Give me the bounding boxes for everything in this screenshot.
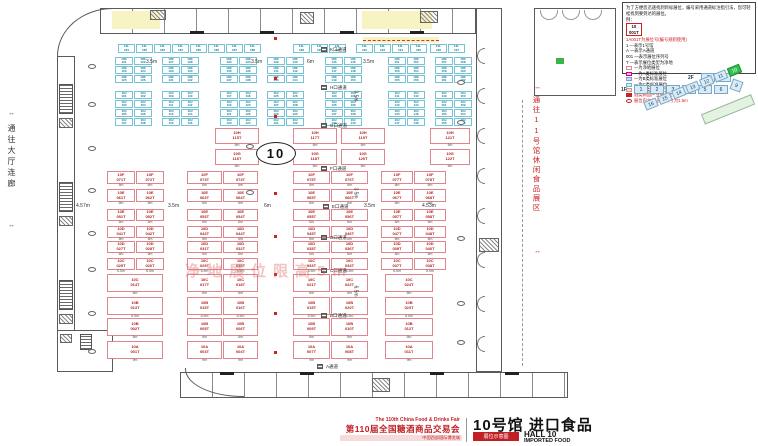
booth-cell-standard: 10K131	[162, 75, 180, 83]
booth-number: 147	[331, 70, 336, 73]
booth-cell-standard: 10J131	[267, 118, 285, 126]
booth-number: 193	[380, 49, 385, 52]
booth-number: 197	[454, 49, 459, 52]
booth-number: 140	[350, 122, 355, 125]
column-marker-icon	[88, 349, 96, 354]
booth-number: 009T	[307, 327, 316, 332]
booth-number: 122	[245, 113, 250, 116]
booth-number: 184	[178, 49, 183, 52]
legend-example-label: 例：	[626, 17, 752, 23]
booth-number: 045T	[307, 232, 316, 237]
booth-dimension: 9m	[293, 359, 330, 363]
booth-number: 111	[169, 104, 174, 107]
booth-dimension: 6m	[341, 165, 385, 169]
booth-cell-clear: 10A001T	[107, 341, 163, 359]
booth-dimension: 9m	[187, 359, 222, 363]
booth-cell-standard: 10K124	[134, 66, 152, 74]
column-marker-icon	[246, 144, 254, 149]
column-marker-icon	[457, 120, 465, 125]
mini-map-hall: 6	[714, 85, 728, 94]
booth-cell-standard: 10J145	[388, 109, 406, 117]
aisle-label: F口通道	[330, 166, 346, 172]
booth-cell-standard: 10K160	[454, 66, 472, 74]
booth-number: 147	[394, 122, 399, 125]
booth-dimension: 6m	[107, 221, 135, 225]
booth-cell-standard: 10K147	[325, 66, 343, 74]
booth-cell-standard: 10J123	[220, 118, 238, 126]
booth-cell-standard: 10J142	[407, 91, 425, 99]
booth-cell-standard: 10J115	[162, 118, 180, 126]
booth-number: 154	[413, 70, 418, 73]
booth-cell-standard: 10L195	[410, 44, 427, 53]
booth-cell-standard: 10J118	[239, 91, 257, 99]
booth-number: 031T	[200, 247, 209, 252]
dimension-label: 3.5m	[353, 90, 359, 101]
fire-point-icon	[274, 235, 277, 238]
booth-number: 150	[350, 79, 355, 82]
booth-cell-clear: 10B016T	[223, 297, 258, 315]
booth-cell-clear: 10B006T	[223, 318, 258, 336]
column-marker-icon	[88, 267, 96, 272]
booth-dimension: 6m	[107, 184, 135, 188]
booth-dimension: 6m	[223, 336, 258, 340]
booth-number: 115	[169, 122, 174, 125]
booth-number: 108	[140, 122, 145, 125]
aisle-label: B口通道	[330, 313, 347, 319]
door-arc-icon	[477, 296, 485, 312]
booth-cell-standard: 10K138	[239, 75, 257, 83]
booth-number: 130	[187, 70, 192, 73]
booth-number: 127	[168, 61, 173, 64]
booth-number: 134	[245, 61, 250, 64]
mini-map-hall: 1	[634, 85, 648, 94]
booth-cell-standard: 10J125	[267, 91, 285, 99]
booth-cell-clear: 10B013T	[107, 297, 163, 315]
booth-cell-standard: 10K140	[286, 57, 304, 65]
booth-number: 123	[121, 70, 126, 73]
booth-number: 016T	[236, 306, 245, 311]
booth-cell-standard: 10K130	[181, 66, 199, 74]
booth-number: 121	[226, 113, 231, 116]
booth-cell-clear: 10A008T	[331, 341, 368, 359]
booth-cell-standard: 10J104	[134, 100, 152, 108]
booth-number: 027T	[116, 247, 125, 252]
booth-number: 151	[441, 104, 446, 107]
booth-cell-standard: 10K148	[344, 66, 362, 74]
booth-dimension: 6m	[293, 292, 330, 296]
booth-dimension: 6.5m	[414, 270, 446, 274]
booth-cell-standard: 10J111	[162, 100, 180, 108]
booth-number: 039T	[392, 247, 401, 252]
booth-number: 186	[214, 49, 219, 52]
booth-cell-standard: 10K137	[220, 75, 238, 83]
booth-cell-clear: 10H117T	[293, 128, 337, 144]
booth-cell-standard: 10J114	[181, 109, 199, 117]
booth-number: 122T	[445, 157, 454, 162]
booth-dimension: 6m	[414, 184, 446, 188]
booth-number: 114	[188, 113, 193, 116]
booth-number: 007T	[307, 350, 316, 355]
booth-cell-standard: 10K149	[325, 75, 343, 83]
booth-cell-standard: 10K139	[267, 57, 285, 65]
column-marker-icon	[88, 311, 96, 316]
booth-number: 148	[350, 70, 355, 73]
booth-number: 132	[187, 79, 192, 82]
booth-number: 118	[246, 95, 251, 98]
booth-dimension: 6.5m	[136, 270, 164, 274]
aisle-label: A通道	[326, 364, 338, 370]
dimension-label: 6.5m	[353, 285, 359, 296]
booth-number: 119T	[359, 136, 368, 141]
corridor-arrow-icon: ↔	[8, 222, 15, 229]
booth-number: 008T	[345, 350, 354, 355]
booth-number: 194	[398, 49, 403, 52]
booth-dimension: 6m	[430, 165, 470, 169]
booth-cell-standard: 10K150	[344, 75, 362, 83]
booth-dimension: 6m	[107, 336, 163, 340]
watermark-text: 净地展位限高5m	[185, 260, 353, 281]
booth-dimension: 6m	[223, 221, 258, 225]
dimension-label: 4.57m	[76, 203, 90, 209]
booth-cell-standard: 10J138	[344, 109, 362, 117]
booth-dimension: 6m	[107, 202, 135, 206]
booth-cell-standard: 10J127	[267, 100, 285, 108]
booth-number: 160	[460, 70, 465, 73]
booth-dimension: 6m	[385, 336, 433, 340]
booth-number: 074T	[236, 178, 245, 183]
stairs-icon	[321, 166, 327, 171]
booth-number: 113	[169, 113, 174, 116]
booth-number: 125	[121, 79, 126, 82]
booth-number: 020T	[345, 306, 354, 311]
door-arc-icon	[477, 48, 485, 64]
aisle-label: K口通道	[330, 47, 347, 53]
booth-cell-standard: 10K158	[454, 57, 472, 65]
booth-dimension: 6m	[331, 221, 368, 225]
hall-number-badge: 10	[256, 142, 296, 165]
booth-number: 144	[292, 79, 297, 82]
booth-number: 055T	[307, 215, 316, 220]
aisle-label: H口通道	[330, 85, 347, 91]
booth-number: 150	[460, 95, 465, 98]
booth-number: 013T	[130, 306, 139, 311]
booth-number: 025T	[116, 264, 125, 269]
booth-number: 076T	[345, 178, 354, 183]
booth-number: 058T	[425, 215, 434, 220]
booth-cell-standard: 10J155	[435, 118, 453, 126]
dimension-label: 3.5m	[251, 59, 262, 65]
venue-mini-map: 2F 78 1F 123456 9 16151413121110	[615, 70, 758, 140]
booth-number: 155	[394, 79, 399, 82]
booth-number: 152	[413, 61, 418, 64]
stairs-icon	[317, 364, 323, 369]
booth-cell-standard: 10K125	[115, 75, 133, 83]
booth-number: 142	[292, 70, 297, 73]
floor1-label: 1F	[621, 87, 627, 93]
booth-number: 138	[350, 113, 355, 116]
booth-cell-standard: 10K161	[435, 75, 453, 83]
booth-number: 136	[245, 70, 250, 73]
booth-cell-standard: 10J108	[134, 118, 152, 126]
booth-dimension: 6m	[136, 221, 164, 225]
legend-rules: 1 —表示1号馆A —表示A通道001 —表示展位序列号T —表示展位类型为净地	[626, 43, 752, 66]
booth-number: 120T	[358, 157, 367, 162]
booth-cell-standard: 10L183	[154, 44, 171, 53]
booth-cell-clear: 10A011T	[385, 341, 433, 359]
booth-cell-standard: 10J146	[407, 109, 425, 117]
booth-number: 062T	[145, 196, 154, 201]
booth-cell-standard: 10L182	[136, 44, 153, 53]
booth-number: 106	[140, 113, 145, 116]
corridor-arrow-icon: ↔	[534, 248, 541, 255]
booth-cell-standard: 10K155	[388, 75, 406, 83]
booth-dimension: 6m	[331, 253, 368, 257]
booth-number: 133	[331, 95, 336, 98]
fire-point-icon	[274, 351, 277, 354]
booth-number: 187	[232, 49, 237, 52]
booth-dimension: 9m	[107, 359, 163, 363]
booth-number: 101	[121, 95, 126, 98]
door-arc-icon	[477, 168, 485, 184]
booth-number: 137	[331, 113, 336, 116]
booth-number: 149	[331, 79, 336, 82]
booth-dimension: 6m	[187, 184, 222, 188]
booth-number: 037T	[392, 264, 401, 269]
dimension-label: 3.5m	[168, 203, 179, 209]
booth-number: 129	[168, 70, 173, 73]
booth-number: 139	[273, 61, 278, 64]
booth-number: 125	[273, 95, 278, 98]
aisle-label: G口通道	[330, 123, 347, 129]
booth-cell-standard: 10L187	[226, 44, 243, 53]
column-marker-icon	[246, 190, 254, 195]
booth-cell-standard: 10K123	[115, 66, 133, 74]
dimension-label: 3.5m	[146, 59, 157, 65]
booth-number: 005T	[200, 327, 209, 332]
booth-number: 051T	[116, 215, 125, 220]
booth-cell-standard: 10K154	[407, 66, 425, 74]
booth-cell-standard: 10J119	[220, 100, 238, 108]
booth-number: 019T	[307, 306, 316, 311]
booth-number: 119	[227, 104, 232, 107]
booth-cell-standard: 10J126	[286, 91, 304, 99]
booth-cell-standard: 10J128	[286, 100, 304, 108]
booth-cell-standard: 10J150	[454, 91, 472, 99]
booth-number: 155	[441, 122, 446, 125]
booth-cell-clear: 10C014T	[107, 274, 163, 292]
dimension-label: 3.5m	[363, 59, 374, 65]
booth-number: 122	[140, 61, 145, 64]
fair-venue: 中国西部国际博览城	[340, 435, 462, 441]
booth-cell-standard: 10K153	[388, 66, 406, 74]
booth-dimension: 6m	[107, 292, 163, 296]
booth-number: 072T	[145, 178, 154, 183]
booth-number: 182	[142, 49, 147, 52]
booth-cell-clear: 10H121T	[430, 128, 470, 144]
booth-cell-clear: 10G120T	[341, 149, 385, 165]
booth-number: 017T	[200, 283, 209, 288]
floor2-label: 2F	[688, 75, 694, 81]
booth-number: 133	[226, 61, 231, 64]
booth-cell-clear: 10B009T	[293, 318, 330, 336]
booth-cell-clear: 10A004T	[223, 341, 258, 359]
booth-number: 123	[226, 122, 231, 125]
booth-number: 124	[245, 122, 250, 125]
booth-dimension: 6m	[187, 202, 222, 206]
booth-number: 002T	[130, 327, 139, 332]
booth-number: 047T	[392, 232, 401, 237]
legend-example-number: 001T	[629, 30, 639, 35]
booth-number: 067T	[392, 196, 401, 201]
booth-cell-standard: 10L194	[392, 44, 409, 53]
booth-number: 110	[188, 95, 193, 98]
aisle-label: E口通道	[332, 204, 349, 210]
booth-number: 145	[394, 113, 399, 116]
booth-cell-standard: 10K129	[162, 66, 180, 74]
booth-cell-standard: 10J106	[134, 109, 152, 117]
map-tag-badge: 展位示意图	[473, 432, 519, 441]
legend-box: 为了方便您迅速找到目标展位，编号采用通道标注指引法，您可轻松找到要到达的展位。 …	[622, 2, 756, 74]
booth-number: 153	[394, 70, 399, 73]
booth-cell-standard: 10K133	[220, 57, 238, 65]
booth-cell-standard: 10L186	[208, 44, 225, 53]
booth-cell-standard: 10J152	[454, 100, 472, 108]
booth-dimension: 6m	[293, 253, 330, 257]
booth-cell-standard: 10J133	[325, 91, 343, 99]
booth-dimension: 6m	[430, 144, 470, 148]
booth-number: 195	[416, 49, 421, 52]
booth-cell-standard: 10L196	[430, 44, 447, 53]
column-marker-icon	[457, 236, 465, 241]
column-marker-icon	[88, 102, 96, 107]
booth-cell-clear: 10G118T	[293, 149, 337, 165]
booth-number: 023T	[404, 306, 413, 311]
booth-number: 028T	[145, 247, 154, 252]
booth-dimension: 6m	[331, 336, 368, 340]
stairs-icon	[321, 235, 327, 240]
booth-cell-standard: 10J147	[388, 118, 406, 126]
booth-cell-standard: 10K152	[407, 57, 425, 65]
booth-number: 121T	[445, 136, 454, 141]
door-arc-icon	[477, 336, 485, 352]
booth-number: 041T	[116, 232, 125, 237]
door-arc-icon	[477, 208, 485, 224]
booth-number: 075T	[307, 178, 316, 183]
booth-number: 185	[196, 49, 201, 52]
booth-number: 154	[460, 113, 465, 116]
booth-cell-standard: 10K135	[220, 66, 238, 74]
fire-point-icon	[274, 312, 277, 315]
column-marker-icon	[88, 64, 96, 69]
booth-number: 105	[121, 113, 126, 116]
booth-number: 140	[292, 61, 297, 64]
booth-cell-standard: 10K145	[325, 57, 343, 65]
booth-number: 141	[273, 70, 278, 73]
booth-number: 018T	[236, 283, 245, 288]
booth-number: 048T	[425, 232, 434, 237]
booth-dimension: 6m	[223, 202, 258, 206]
booth-number: 053T	[200, 215, 209, 220]
booth-number: 107	[121, 122, 126, 125]
booth-number: 073T	[200, 178, 209, 183]
stairs-icon	[321, 123, 327, 128]
booth-number: 117	[227, 95, 232, 98]
booth-number: 063T	[200, 196, 209, 201]
booth-number: 043T	[200, 232, 209, 237]
floorplan-page: 10L18110L18210L18310L18410L18510L18610L1…	[0, 0, 758, 446]
footer-divider	[466, 418, 467, 442]
booth-number: 112	[188, 104, 193, 107]
booth-number: 153	[441, 113, 446, 116]
booth-number: 142	[413, 95, 418, 98]
booth-number: 149	[441, 95, 446, 98]
booth-number: 135	[226, 70, 231, 73]
booth-cell-standard: 10J130	[286, 109, 304, 117]
corridor-arrow-icon: ↔	[8, 110, 15, 117]
booth-number: 064T	[236, 196, 245, 201]
booth-number: 044T	[236, 232, 245, 237]
booth-cell-clear: 10C024T	[385, 274, 433, 292]
booth-cell-standard: 10J116	[181, 118, 199, 126]
booth-number: 077T	[392, 178, 401, 183]
booth-cell-standard: 10J120	[239, 100, 257, 108]
booth-number: 143	[394, 104, 399, 107]
stairs-icon	[321, 85, 327, 90]
right-corridor-label: 通往11号馆休闲食品展区	[531, 96, 542, 213]
dimension-label: 3.5m	[364, 203, 375, 209]
dimension-label: 4.53m	[422, 203, 436, 209]
booth-number: 014T	[130, 283, 139, 288]
booth-number: 104	[140, 104, 145, 107]
booth-number: 151	[394, 61, 399, 64]
booth-cell-standard: 10J143	[388, 100, 406, 108]
booth-number: 003T	[200, 350, 209, 355]
booth-number: 189	[299, 49, 304, 52]
booth-cell-standard: 10L184	[172, 44, 189, 53]
booth-cell-standard: 10K146	[344, 57, 362, 65]
booth-number: 021T	[307, 283, 316, 288]
booth-dimension: 6m	[187, 253, 222, 257]
aisle-label: D口通道	[330, 235, 347, 241]
booth-dimension: 6m	[107, 253, 135, 257]
booth-dimension: 6m	[381, 221, 413, 225]
door-arc-icon	[477, 128, 485, 144]
booth-cell-standard: 10J109	[162, 91, 180, 99]
booth-dimension: 6m	[331, 184, 368, 188]
booth-cell-clear: 10H115T	[215, 128, 259, 144]
booth-number: 057T	[392, 215, 401, 220]
booth-number: 109	[168, 95, 173, 98]
booth-number: 117T	[311, 136, 320, 141]
booth-cell-standard: 10K136	[239, 66, 257, 74]
booth-cell-standard: 10K159	[435, 66, 453, 74]
booth-number: 012T	[404, 327, 413, 332]
booth-number: 124	[140, 70, 145, 73]
booth-cell-clear: 10G116T	[215, 149, 259, 165]
booth-cell-standard: 10J124	[239, 118, 257, 126]
booth-number: 071T	[116, 178, 125, 183]
booth-cell-standard: 10J101	[115, 91, 133, 99]
fair-title-cn: 第110届全国糖酒商品交易会	[240, 423, 460, 435]
booth-number: 146	[350, 61, 355, 64]
booth-number: 038T	[425, 264, 434, 269]
booth-dimension: 6m	[414, 253, 446, 257]
legend-intro: 为了方便您迅速找到目标展位，编号采用通道标注指引法，您可轻松找到要到达的展位。	[626, 5, 752, 17]
column-marker-icon	[88, 231, 96, 236]
booth-dimension: 6m	[223, 184, 258, 188]
door-arc-icon	[477, 252, 485, 268]
booth-number: 078T	[425, 178, 434, 183]
